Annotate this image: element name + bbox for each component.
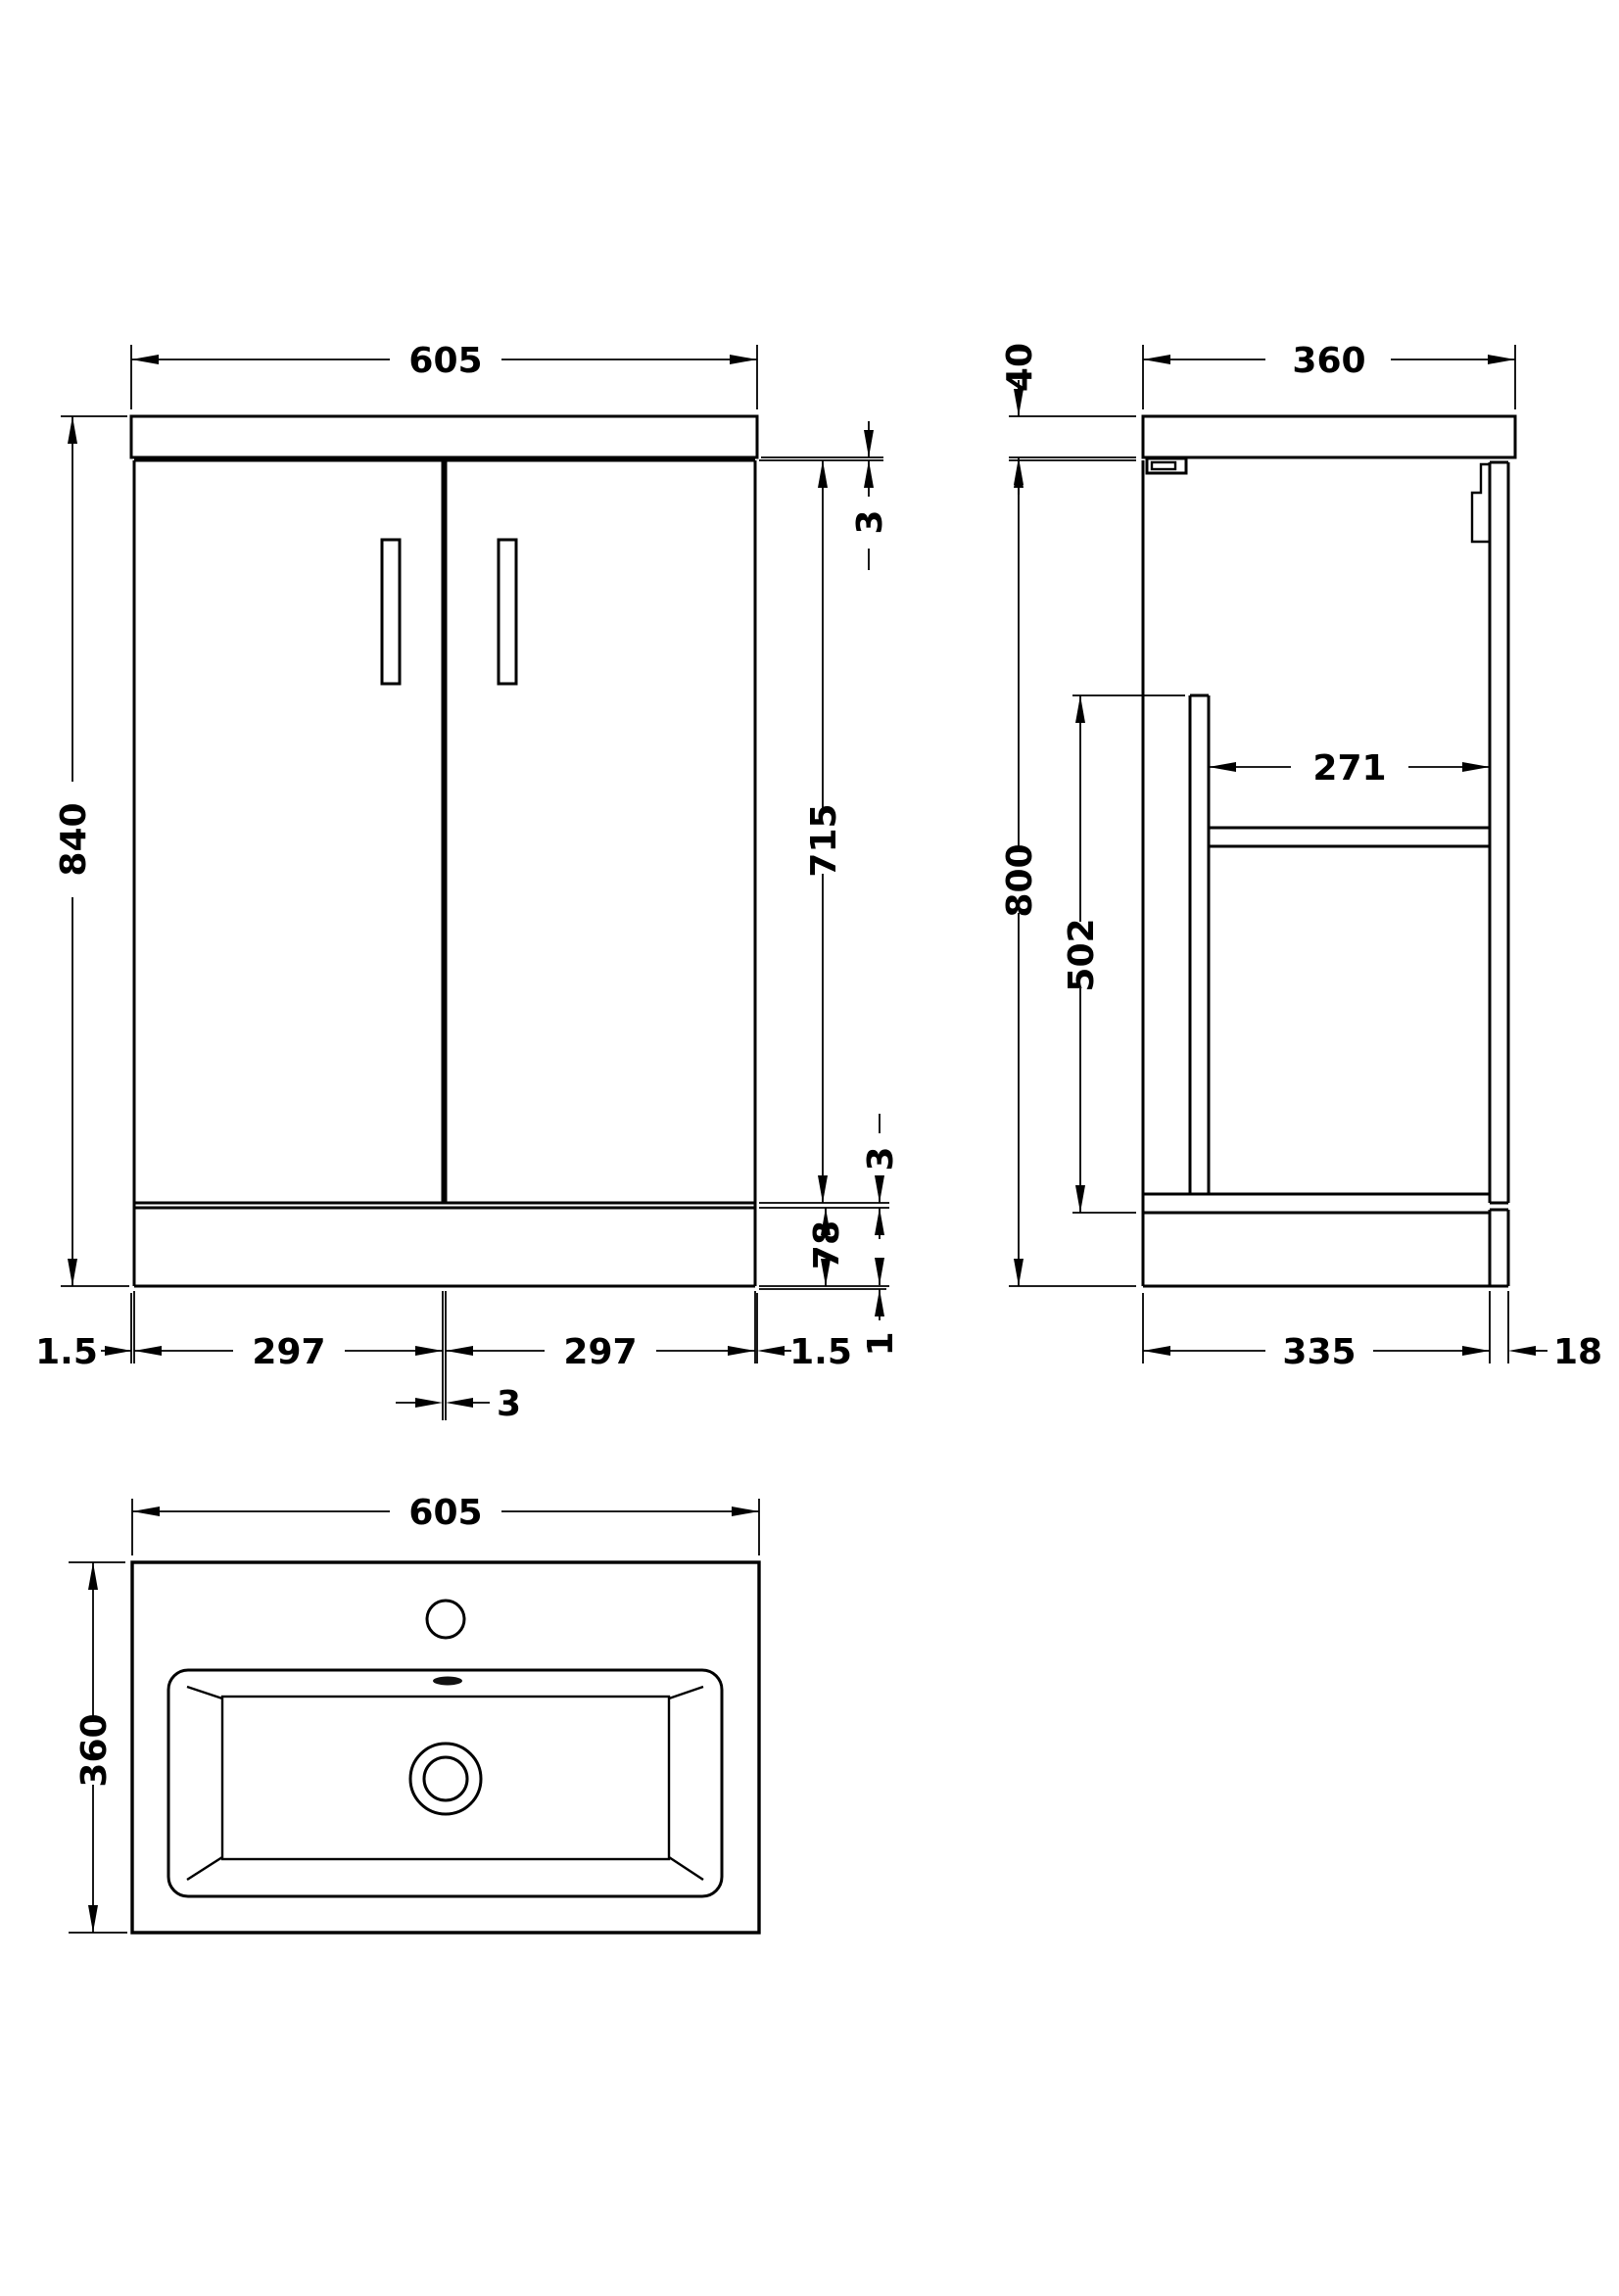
dim-front-width-label: 605 bbox=[408, 341, 482, 381]
front-dimensions: 605 840 3 bbox=[35, 341, 901, 1424]
basin-corner-br bbox=[669, 1857, 703, 1880]
dim-front-plinth-height-label: 78 bbox=[807, 1220, 847, 1269]
dim-front-left-overhang-label: 1.5 bbox=[35, 1332, 98, 1372]
overflow-slot bbox=[433, 1677, 462, 1686]
front-worktop bbox=[131, 416, 757, 457]
dim-front-overall-height-label: 840 bbox=[54, 802, 94, 876]
basin-bowl-rim bbox=[168, 1670, 722, 1896]
basin-structure bbox=[132, 1562, 759, 1933]
basin-top-view: 605 360 bbox=[69, 1493, 759, 1933]
dim-front-worktop-door-gap: 3 bbox=[759, 421, 890, 570]
dim-basin-depth-label: 360 bbox=[74, 1713, 115, 1787]
side-worktop bbox=[1143, 416, 1515, 457]
drawing-page: 605 840 3 bbox=[0, 0, 1619, 2291]
drain-inner bbox=[424, 1757, 467, 1800]
dim-side-shelf-depth: 271 bbox=[1209, 748, 1490, 789]
dim-side-depth-label: 360 bbox=[1292, 341, 1365, 381]
dim-side-door-thickness: 18 bbox=[1508, 1332, 1602, 1372]
basin-dimensions: 605 360 bbox=[69, 1493, 759, 1933]
vanity-technical-drawing: 605 840 3 bbox=[0, 0, 1619, 2291]
drain-outer bbox=[410, 1744, 481, 1814]
dim-side-cabinet-height: 800 bbox=[1000, 460, 1136, 1286]
dim-basin-width-label: 605 bbox=[408, 1493, 482, 1533]
dim-front-overall-height: 840 bbox=[54, 416, 129, 1286]
dim-front-worktop-door-gap-label: 3 bbox=[850, 509, 890, 534]
front-view: 605 840 3 bbox=[35, 341, 901, 1424]
basin-corner-tr bbox=[669, 1687, 703, 1698]
dim-side-interior-height: 502 bbox=[1062, 695, 1185, 1213]
basin-corner-tl bbox=[187, 1687, 222, 1698]
dim-front-door-plinth-gap: 3 bbox=[759, 1114, 901, 1239]
basin-corner-bl bbox=[187, 1857, 222, 1880]
dim-front-floor-gap-label: 1 bbox=[861, 1331, 901, 1356]
side-dimensions: 360 40 800 bbox=[1000, 341, 1602, 1372]
dim-basin-width: 605 bbox=[132, 1493, 759, 1555]
side-fixing-bracket-slot bbox=[1152, 462, 1175, 469]
front-structure bbox=[131, 416, 757, 1286]
dim-side-door-thickness-label: 18 bbox=[1553, 1332, 1602, 1372]
tap-hole bbox=[427, 1601, 464, 1638]
dim-front-width: 605 bbox=[131, 341, 757, 409]
dim-front-right-door-width-label: 297 bbox=[563, 1332, 637, 1372]
dim-front-door-height-label: 715 bbox=[804, 803, 844, 877]
dim-front-door-center-gap-label: 3 bbox=[497, 1384, 521, 1424]
dim-side-worktop-thickness-label: 40 bbox=[1000, 343, 1040, 392]
dim-front-bottom-row: 1.5 297 297 1.5 3 bbox=[35, 1291, 852, 1424]
side-structure bbox=[1143, 416, 1515, 1286]
dim-front-right-overhang-label: 1.5 bbox=[789, 1332, 852, 1372]
front-right-door-handle bbox=[499, 540, 516, 684]
dim-front-door-height: 715 bbox=[759, 460, 889, 1203]
dim-side-interior-height-label: 502 bbox=[1062, 918, 1102, 991]
side-hinge-block bbox=[1472, 464, 1490, 542]
side-view: 360 40 800 bbox=[1000, 341, 1602, 1372]
dim-side-cabinet-depth: 335 bbox=[1143, 1291, 1508, 1372]
front-left-door-handle bbox=[382, 540, 400, 684]
dim-basin-depth: 360 bbox=[69, 1562, 127, 1933]
dim-side-shelf-depth-label: 271 bbox=[1312, 748, 1386, 789]
dim-front-door-plinth-gap-label: 3 bbox=[861, 1146, 901, 1171]
basin-outer-rim bbox=[132, 1562, 759, 1933]
dim-front-left-door-width-label: 297 bbox=[252, 1332, 325, 1372]
dim-side-cabinet-depth-label: 335 bbox=[1282, 1332, 1356, 1372]
dim-side-cabinet-height-label: 800 bbox=[1000, 843, 1040, 917]
dim-front-plinth-height: 78 bbox=[759, 1208, 889, 1286]
dim-side-depth: 360 bbox=[1143, 341, 1515, 409]
basin-bowl-bottom bbox=[222, 1697, 669, 1859]
